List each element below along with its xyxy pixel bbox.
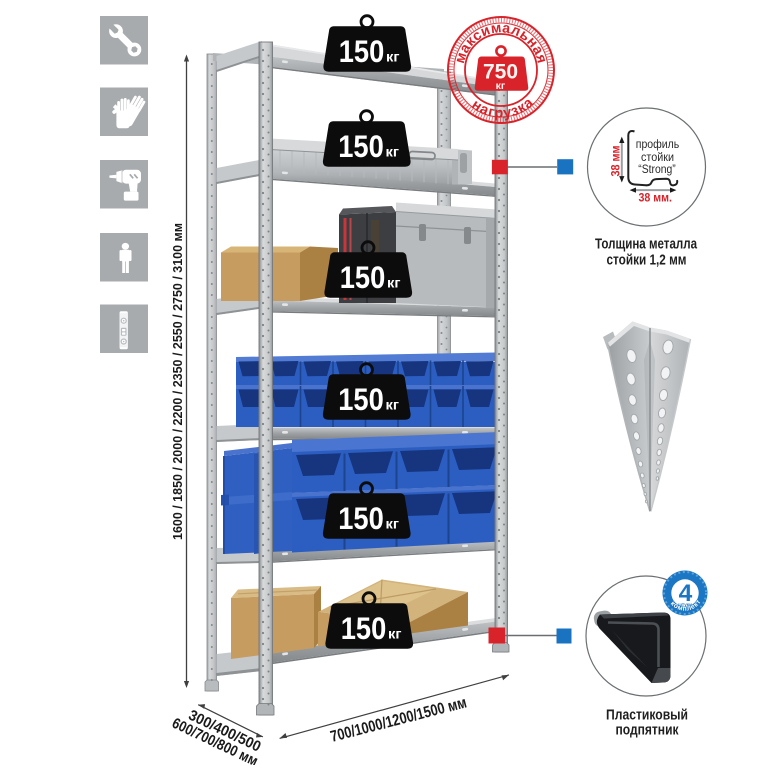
svg-text:стойки 1,2 мм: стойки 1,2 мм (607, 253, 687, 269)
svg-text:Толщина металла: Толщина металла (595, 237, 698, 253)
svg-text:38 мм.: 38 мм. (639, 193, 673, 205)
svg-text:1600 / 1850 / 2000 / 2200 / 23: 1600 / 1850 / 2000 / 2200 / 2350 / 2550 … (170, 223, 185, 540)
svg-text:профиль: профиль (636, 139, 680, 151)
svg-text:38 мм: 38 мм (611, 146, 623, 177)
svg-text:кг: кг (496, 80, 506, 92)
svg-text:стойки: стойки (641, 152, 674, 164)
svg-text:“Strong”: “Strong” (638, 164, 676, 176)
svg-text:подпятник: подпятник (616, 722, 679, 739)
